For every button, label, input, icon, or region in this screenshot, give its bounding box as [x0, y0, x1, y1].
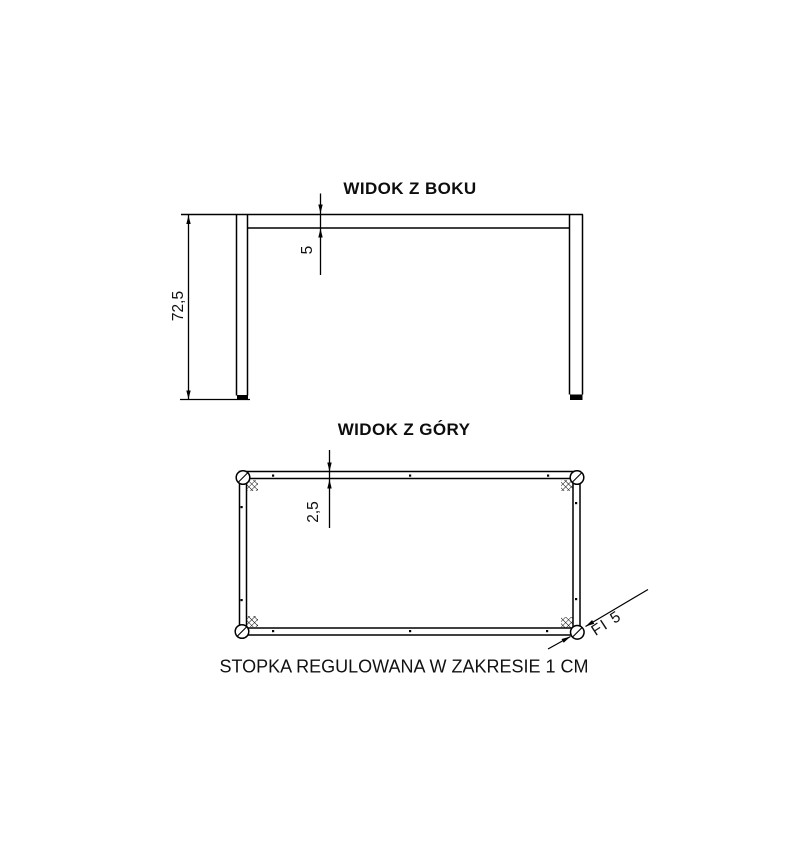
side-view-title: WIDOK Z BOKU	[343, 179, 476, 199]
dimension-thickness-lines	[318, 194, 322, 276]
technical-drawing-canvas: WIDOK Z BOKU 72,5 5 WIDOK Z GÓRY 2,5 FI …	[0, 0, 800, 861]
dimension-height-label: 72,5	[170, 291, 188, 321]
dimension-thickness-label: 5	[299, 246, 317, 255]
dimension-frame-width-lines	[327, 450, 331, 528]
frame-outer	[240, 472, 581, 636]
rail-screw-dots	[241, 475, 578, 633]
dimension-height-lines	[180, 215, 250, 400]
footer-note: STOPKA REGULOWANA W ZAKRESIE 1 CM	[219, 657, 588, 678]
right-foot	[570, 395, 583, 401]
side-view-linework	[180, 194, 583, 401]
frame-inner	[247, 479, 574, 629]
adjustable-feet	[235, 471, 584, 639]
right-leg	[570, 215, 583, 395]
left-leg	[237, 215, 248, 396]
dimension-frame-width-label: 2,5	[305, 501, 323, 523]
top-view-title: WIDOK Z GÓRY	[338, 420, 471, 440]
top-view-linework	[235, 450, 648, 649]
corner-hatching	[246, 480, 573, 628]
